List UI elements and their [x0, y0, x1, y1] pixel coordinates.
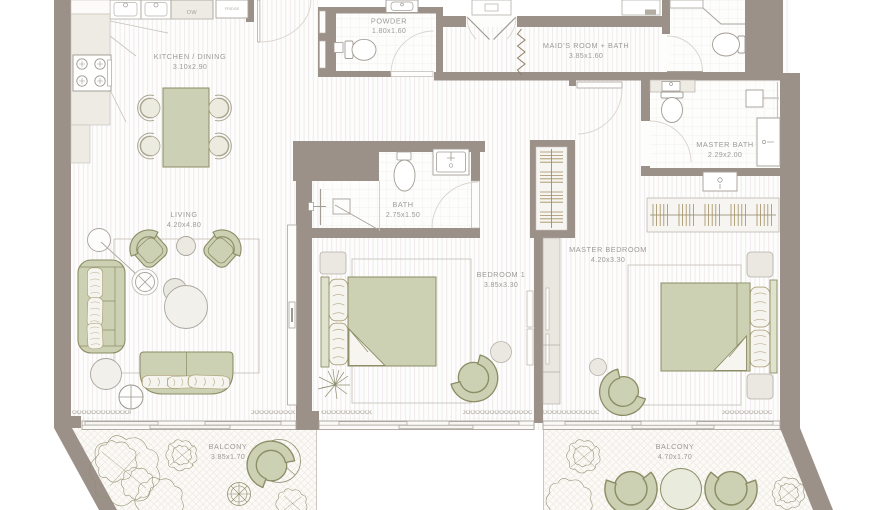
svg-text:4.20x3.30: 4.20x3.30	[591, 256, 625, 264]
svg-text:DW: DW	[187, 10, 197, 16]
svg-text:3.85x1.60: 3.85x1.60	[569, 52, 603, 60]
svg-text:4.70x1.70: 4.70x1.70	[658, 453, 692, 461]
svg-text:MAID'S ROOM + BATH: MAID'S ROOM + BATH	[543, 41, 629, 50]
svg-text:BATH: BATH	[392, 200, 413, 209]
svg-text:POWDER: POWDER	[371, 17, 407, 26]
svg-text:KITCHEN / DINING: KITCHEN / DINING	[154, 52, 226, 61]
svg-text:BALCONY: BALCONY	[656, 442, 695, 451]
svg-text:3.85x1.70: 3.85x1.70	[211, 453, 245, 461]
svg-text:MASTER BATH: MASTER BATH	[696, 140, 753, 149]
svg-text:3.10x2.90: 3.10x2.90	[173, 63, 207, 71]
svg-text:2.29x2.00: 2.29x2.00	[708, 151, 742, 159]
svg-text:BEDROOM 1: BEDROOM 1	[477, 270, 526, 279]
svg-text:4.20x4.80: 4.20x4.80	[167, 221, 201, 229]
svg-text:FRIDGE: FRIDGE	[225, 7, 240, 11]
svg-text:3.85x3.30: 3.85x3.30	[484, 281, 518, 289]
svg-text:2.75x1.50: 2.75x1.50	[386, 211, 420, 219]
svg-text:LIVING: LIVING	[170, 210, 197, 219]
svg-text:1.80x1.60: 1.80x1.60	[372, 27, 406, 35]
svg-text:MASTER BEDROOM: MASTER BEDROOM	[569, 245, 647, 254]
svg-text:BALCONY: BALCONY	[209, 442, 248, 451]
